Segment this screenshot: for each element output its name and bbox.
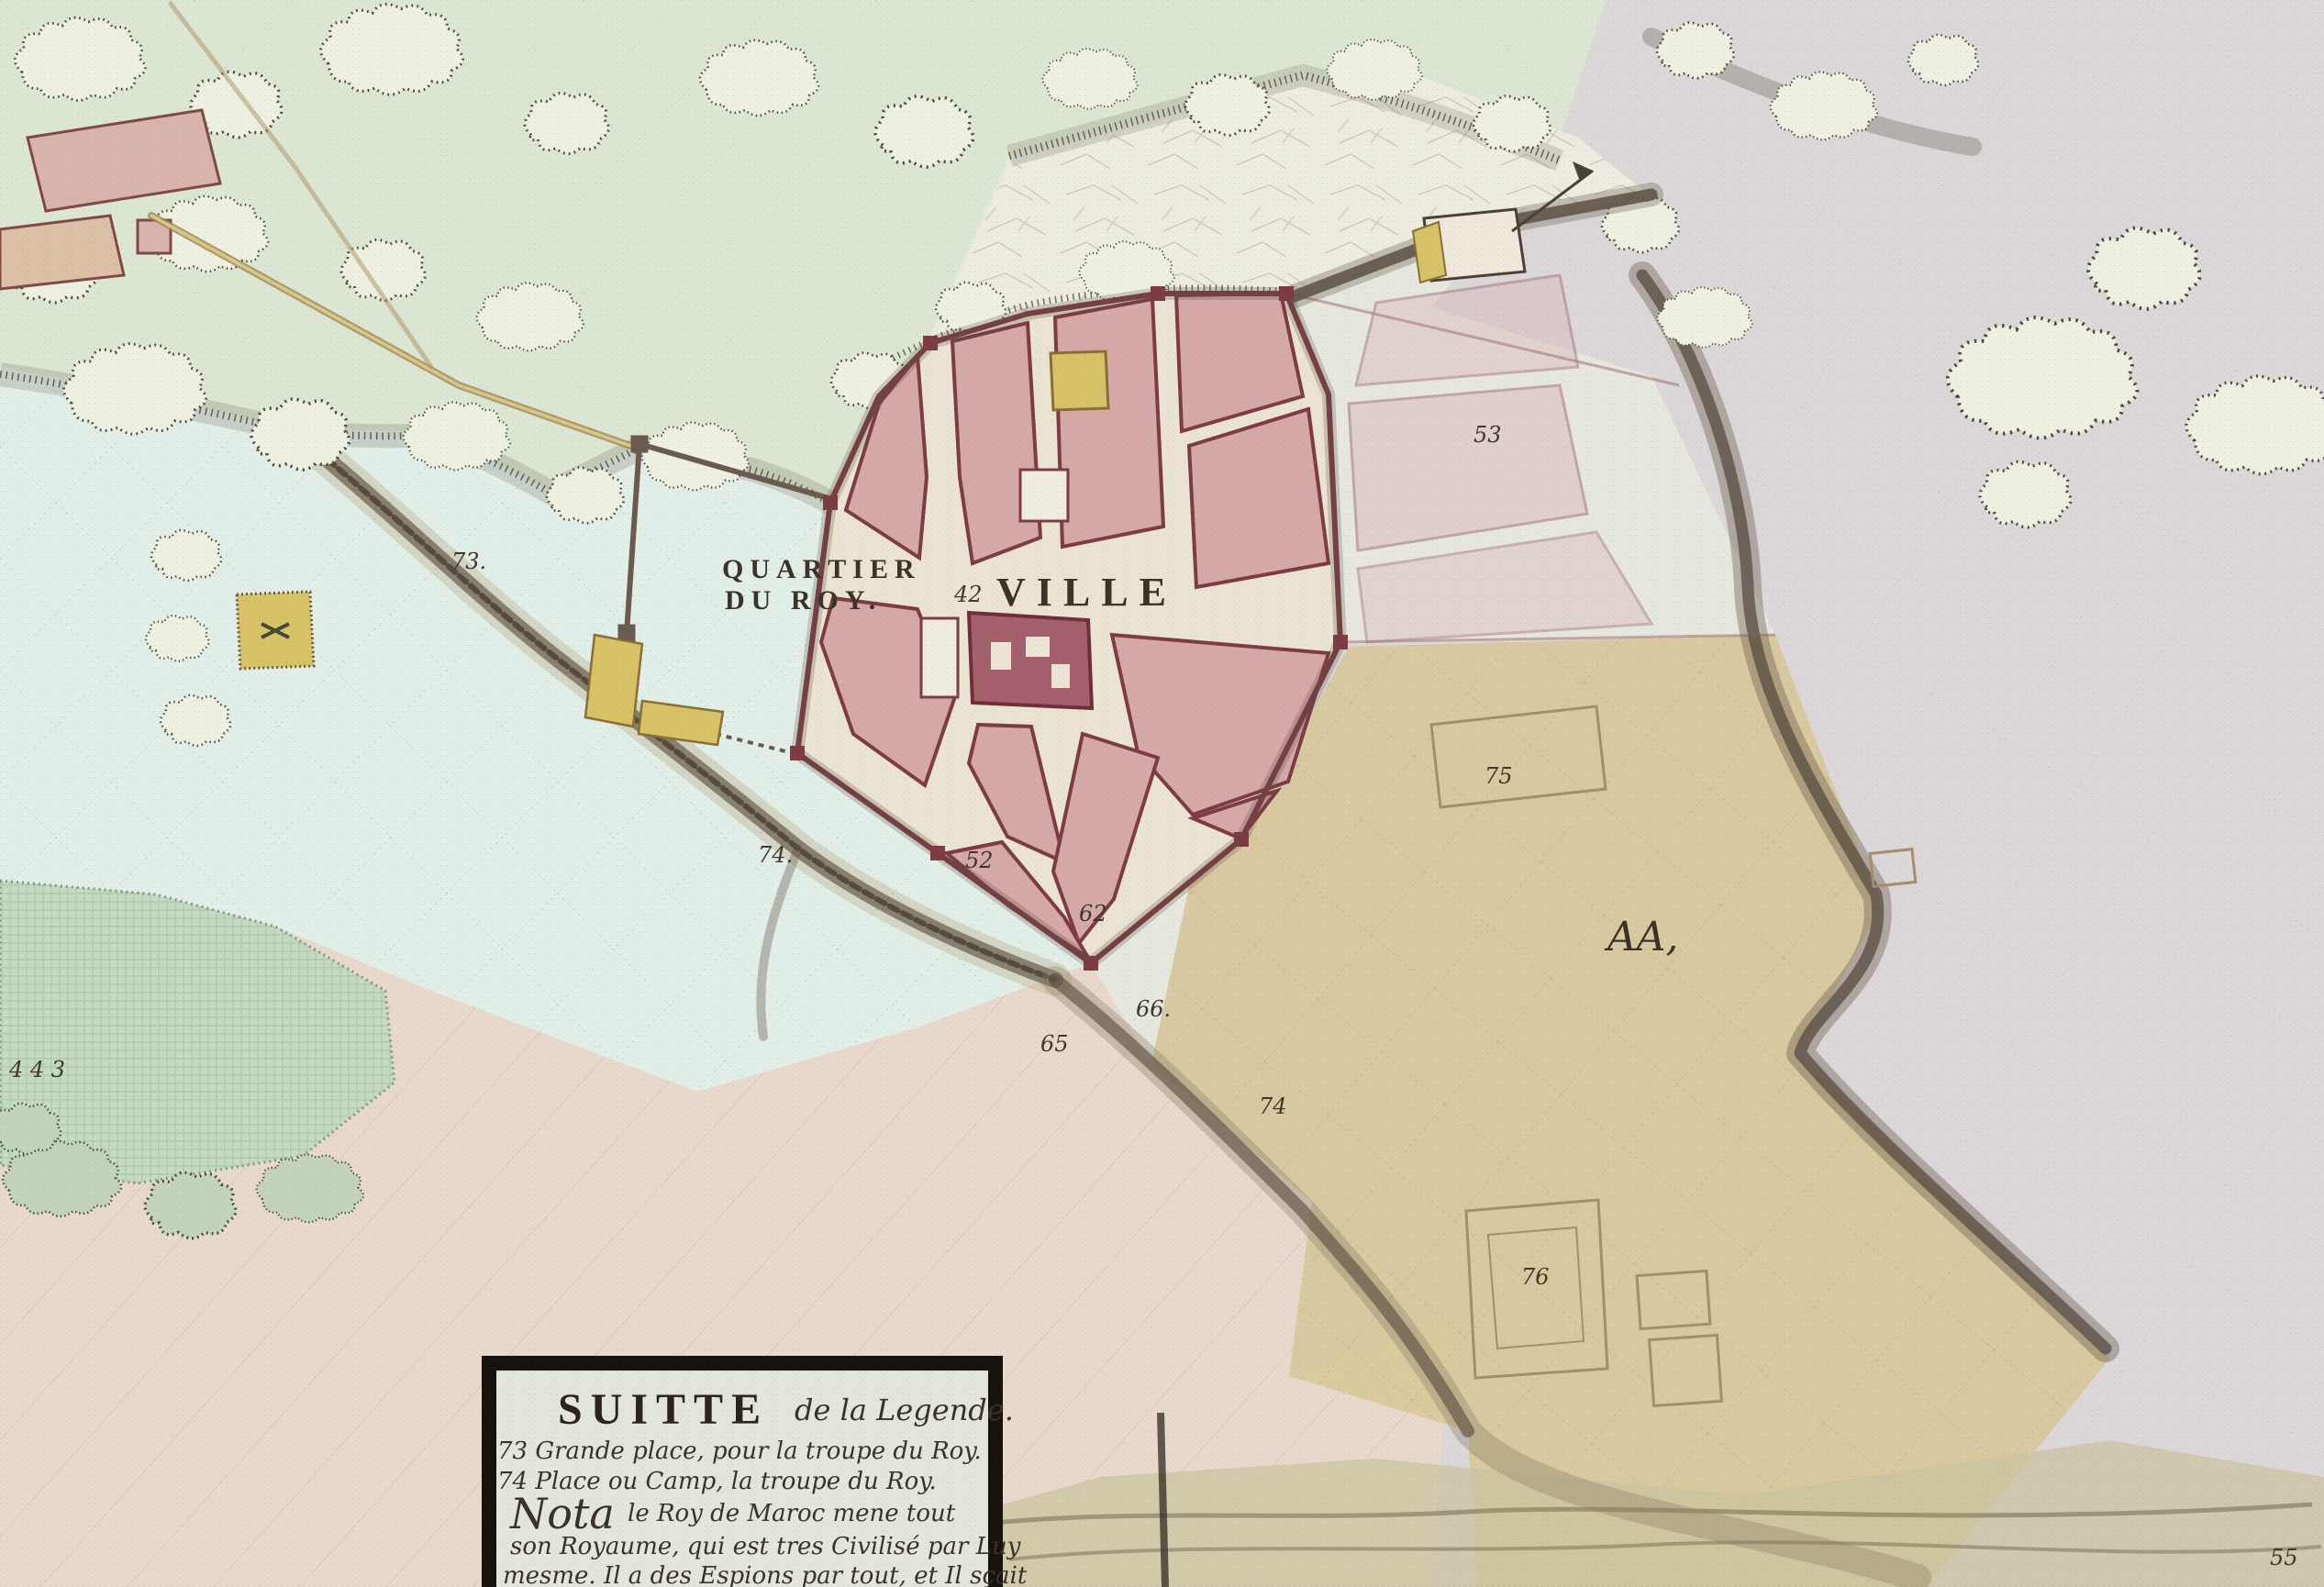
paper-grain-overlay [0,0,2324,1587]
antique-map-page: { "map": { "labels": { "quartier_line1":… [0,0,2324,1587]
map-image: QUARTIER DU ROY. 42 VILLE AA, 73. 74. 52… [0,0,2324,1587]
